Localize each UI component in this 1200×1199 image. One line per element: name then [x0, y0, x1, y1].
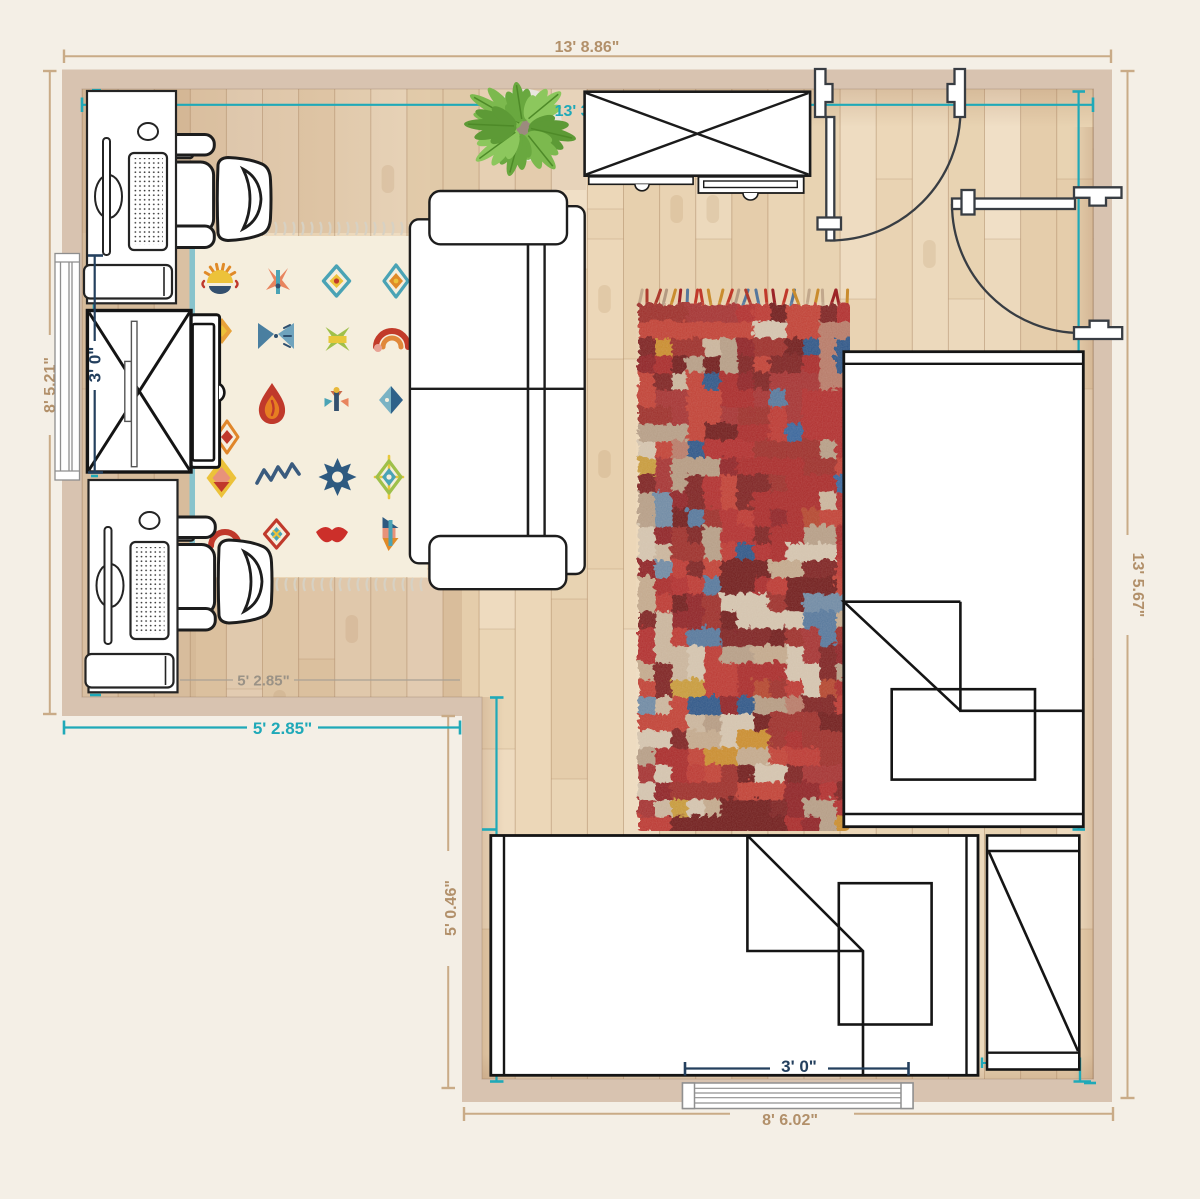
- svg-text:13' 5.67": 13' 5.67": [1129, 553, 1146, 618]
- svg-text:3' 0": 3' 0": [781, 1057, 817, 1076]
- svg-text:8' 6.02": 8' 6.02": [762, 1112, 818, 1129]
- svg-text:5' 2.85": 5' 2.85": [253, 719, 312, 738]
- svg-text:5' 0.46": 5' 0.46": [443, 880, 460, 936]
- svg-text:3' 0": 3' 0": [86, 347, 105, 383]
- svg-text:5' 2.85": 5' 2.85": [237, 673, 289, 690]
- svg-text:13' 8.86": 13' 8.86": [555, 39, 620, 56]
